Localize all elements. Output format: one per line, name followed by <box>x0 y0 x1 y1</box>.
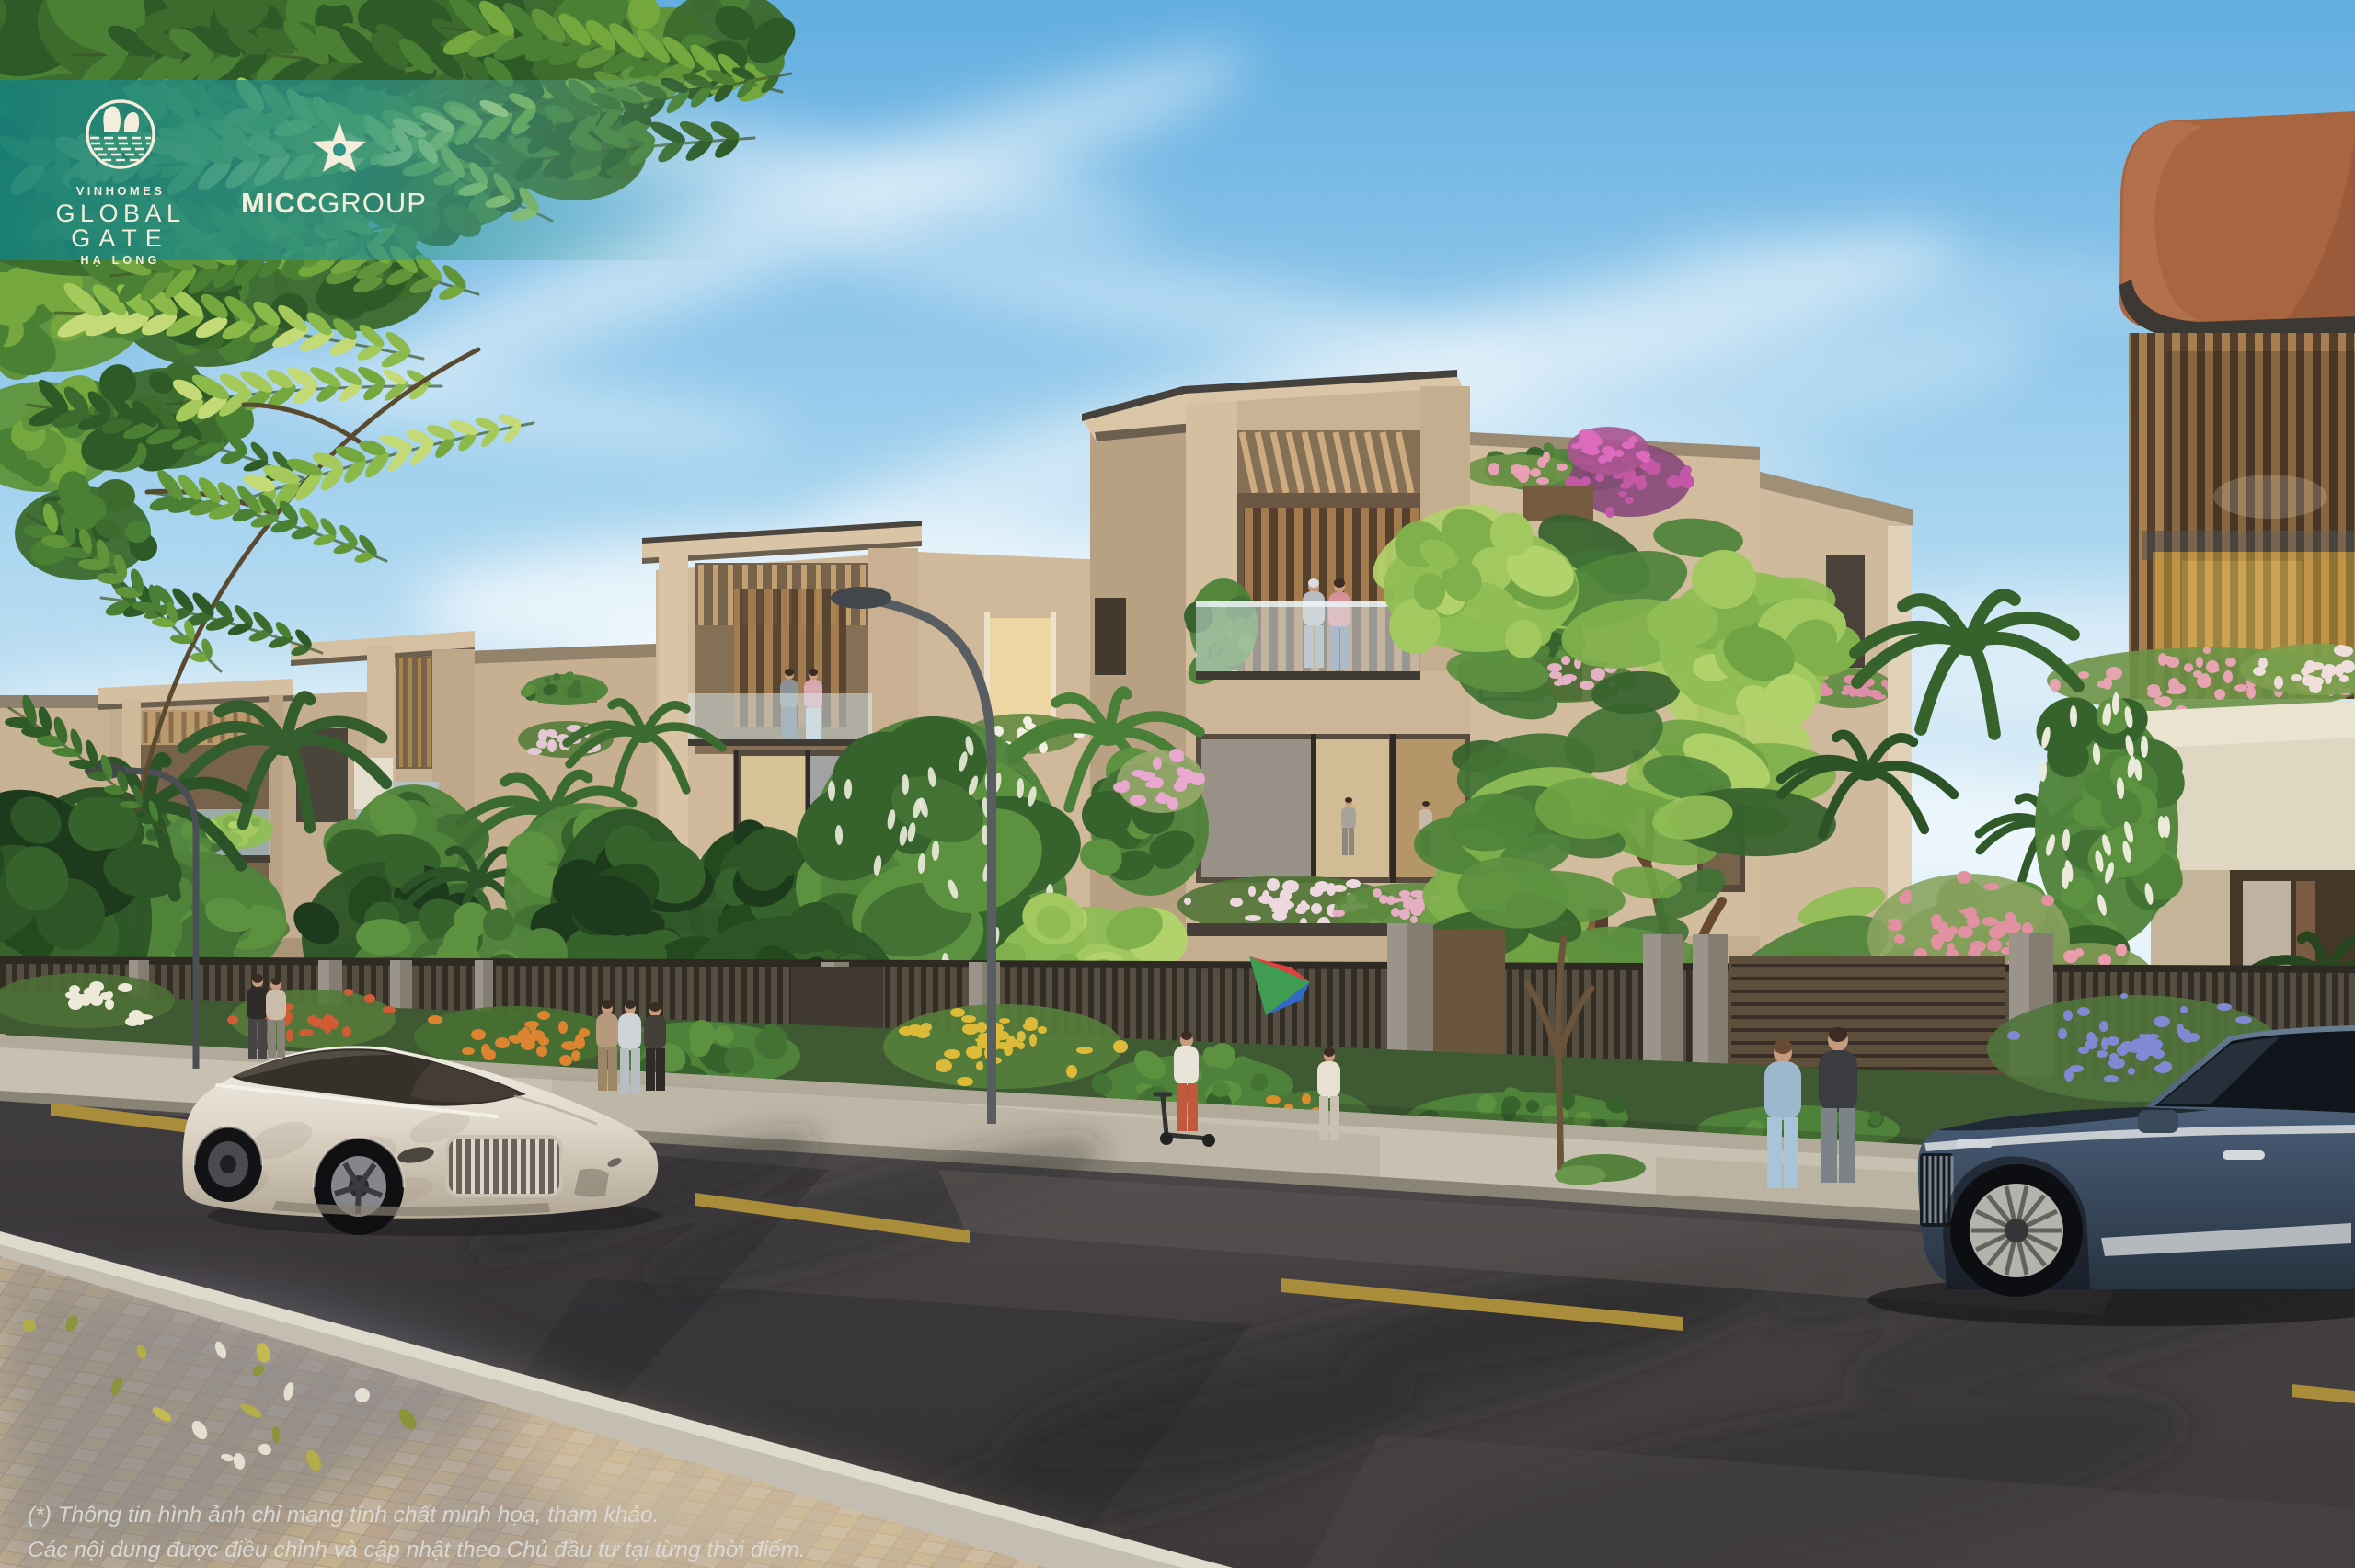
svg-text:MICCGROUP: MICCGROUP <box>241 187 427 219</box>
svg-text:GLOBAL: GLOBAL <box>55 200 185 227</box>
svg-text:(*) Thông tin hình ảnh chỉ man: (*) Thông tin hình ảnh chỉ mang tính chấ… <box>28 1503 659 1528</box>
svg-text:Các nội dung được điều chỉnh v: Các nội dung được điều chỉnh và cập nhật… <box>28 1538 806 1562</box>
svg-text:VINHOMES: VINHOMES <box>76 184 166 198</box>
svg-text:HẠ LONG: HẠ LONG <box>80 254 160 267</box>
svg-text:GATE: GATE <box>71 224 170 252</box>
